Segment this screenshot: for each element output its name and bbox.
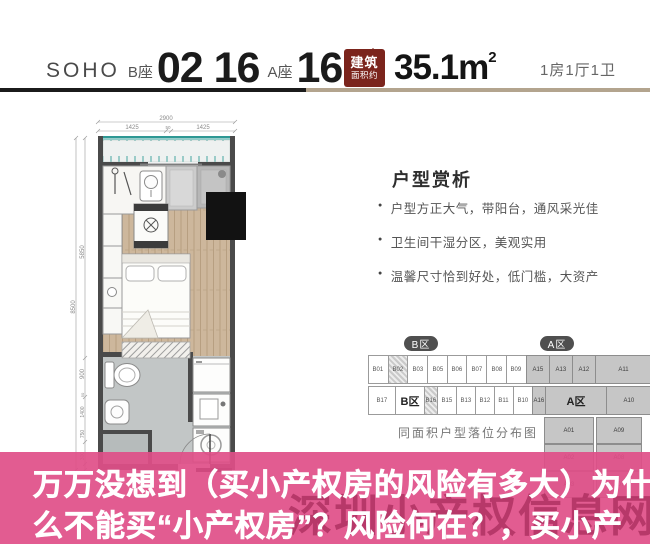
area-badge-line1: 建筑 bbox=[350, 56, 378, 70]
floor-plan: 2900 1425 50 1425 8500 5850 900 1400 50 … bbox=[70, 112, 262, 472]
sink-counter bbox=[193, 394, 230, 426]
unit-cell-B06: B06 bbox=[447, 355, 468, 384]
svg-text:5850: 5850 bbox=[80, 245, 86, 259]
unit-cell-B12: B12 bbox=[475, 386, 495, 415]
unit-numbers-b: 02 16 bbox=[155, 51, 260, 86]
unit-cell-B01: B01 bbox=[368, 355, 389, 384]
zone-a-pill: A区 bbox=[540, 336, 574, 351]
unit-cell-B02: B02 bbox=[388, 355, 409, 384]
diagram-caption: 同面积户型落位分布图 bbox=[370, 424, 566, 441]
svg-text:50: 50 bbox=[165, 125, 171, 130]
unit-cell-A10: A10 bbox=[606, 386, 650, 415]
room-summary: 1房1厅1卫 bbox=[540, 59, 640, 80]
feature-item: 卫生间干湿分区，美观实用 bbox=[378, 232, 638, 251]
panel-title: 户型赏析 bbox=[392, 166, 472, 192]
tower-a-label: A座 bbox=[259, 61, 294, 86]
page-title: SOHO B座 02 16 A座 16 户型 bbox=[46, 46, 359, 86]
feature-list: 户型方正大气，带阳台，通风采光佳 卫生间干湿分区，美观实用 温馨尺寸恰到好处，低… bbox=[378, 198, 638, 300]
headline-overlay: 深圳小产权信息网 万万没想到（买小产权房的风险有多大）为什 么不能买“小产权房”… bbox=[0, 452, 650, 544]
diagram-row-2: B17B区B16B15B13B12B11B10A16A区A10 bbox=[368, 386, 640, 415]
fridge bbox=[193, 358, 230, 392]
area-superscript: 2 bbox=[488, 49, 496, 66]
svg-text:1400: 1400 bbox=[80, 406, 86, 417]
unit-number-a: 16 bbox=[294, 51, 342, 86]
unit-cell-A区: A区 bbox=[545, 386, 607, 415]
unit-cell-B15: B15 bbox=[437, 386, 457, 415]
unit-cell-B17: B17 bbox=[368, 386, 396, 415]
floorplan-page: SOHO B座 02 16 A座 16 户型 建筑 面积约 35.1m 2 1房… bbox=[0, 0, 650, 550]
foot-rug bbox=[122, 342, 190, 358]
feature-item: 户型方正大气，带阳台，通风采光佳 bbox=[378, 198, 638, 217]
wardrobe bbox=[103, 214, 122, 334]
svg-text:1425: 1425 bbox=[196, 125, 210, 131]
separator-dark bbox=[0, 88, 306, 92]
unit-cell-B16: B16 bbox=[424, 386, 438, 415]
unit-cell-B区: B区 bbox=[395, 386, 425, 415]
tower-b-label: B座 bbox=[120, 61, 155, 86]
unit-cell-B11: B11 bbox=[494, 386, 514, 415]
svg-text:2900: 2900 bbox=[159, 116, 173, 122]
unit-cell-B05: B05 bbox=[427, 355, 448, 384]
unit-cell-A15: A15 bbox=[526, 355, 550, 384]
header-separator bbox=[0, 88, 650, 92]
bed bbox=[122, 254, 190, 338]
area-value: 35.1m bbox=[394, 48, 488, 88]
side-table bbox=[134, 204, 168, 248]
separator-tan bbox=[306, 88, 650, 92]
svg-text:750: 750 bbox=[80, 430, 86, 439]
unit-cell-A12: A12 bbox=[572, 355, 596, 384]
svg-text:50: 50 bbox=[80, 392, 85, 397]
unit-cell-B10: B10 bbox=[513, 386, 533, 415]
svg-text:8500: 8500 bbox=[71, 300, 77, 314]
zone-b-pill: B区 bbox=[404, 336, 438, 351]
brand-label: SOHO bbox=[46, 59, 120, 86]
area-badge: 建筑 面积约 bbox=[344, 49, 385, 87]
unit-cell-B07: B07 bbox=[466, 355, 487, 384]
area-group: 建筑 面积约 35.1m 2 bbox=[344, 48, 497, 88]
area-badge-line2: 面积约 bbox=[351, 70, 378, 80]
balcony-floor bbox=[103, 140, 230, 162]
headline-line-1: 万万没想到（买小产权房的风险有多大）为什 bbox=[33, 460, 650, 504]
diagram-row-1: B01B02B03B05B06B07B08B09A15A13A12A11 bbox=[368, 355, 640, 384]
unit-cell-B08: B08 bbox=[486, 355, 507, 384]
unit-cell-A16: A16 bbox=[532, 386, 546, 415]
unit-cell-B09: B09 bbox=[506, 355, 527, 384]
svg-text:1425: 1425 bbox=[125, 125, 139, 131]
unit-cell-A13: A13 bbox=[549, 355, 573, 384]
feature-item: 温馨尺寸恰到好处，低门槛，大资产 bbox=[378, 266, 638, 285]
ac-unit bbox=[206, 192, 246, 240]
unit-cell-B13: B13 bbox=[456, 386, 476, 415]
unit-cell-A11: A11 bbox=[595, 355, 650, 384]
hand-basin bbox=[105, 400, 129, 424]
unit-cell-B03: B03 bbox=[407, 355, 428, 384]
toilet bbox=[105, 362, 140, 388]
svg-text:900: 900 bbox=[80, 368, 86, 379]
unit-cell-A09: A09 bbox=[596, 417, 642, 444]
headline-line-2: 么不能买“小产权房”？风险何在？，买小产 bbox=[33, 501, 623, 544]
